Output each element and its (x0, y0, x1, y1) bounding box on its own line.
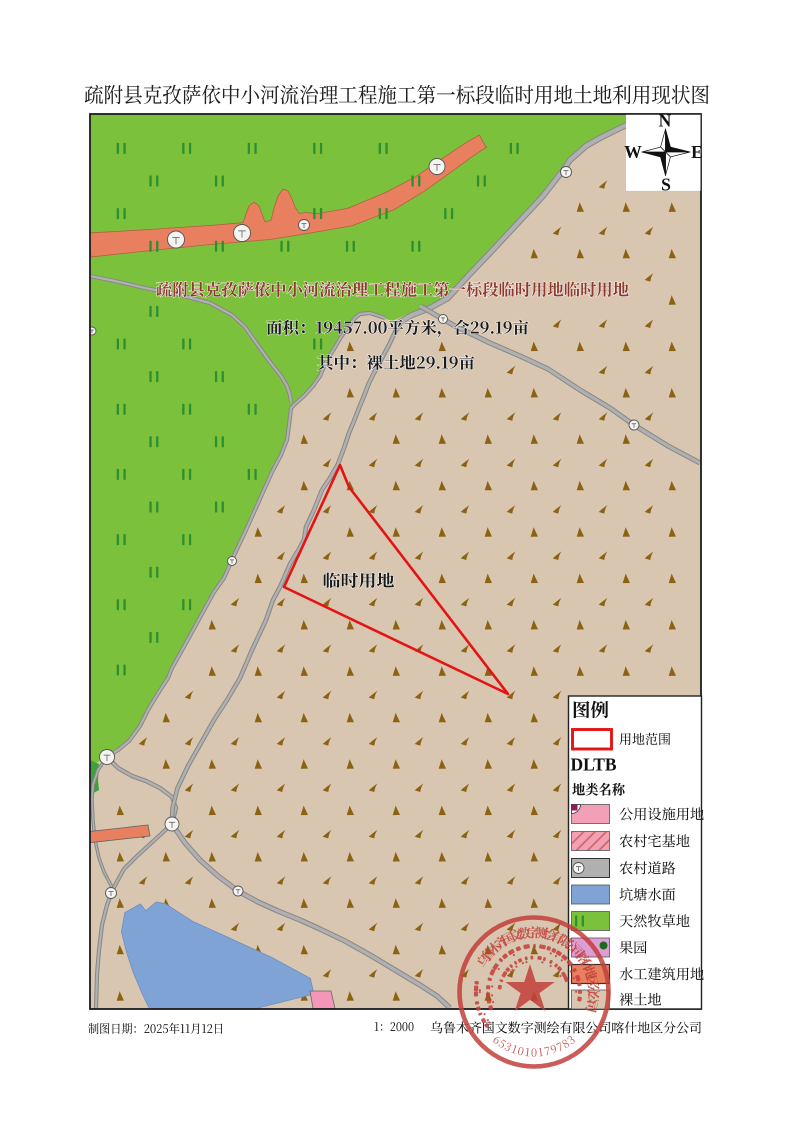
svg-text:W: W (624, 142, 642, 162)
svg-text:S: S (661, 175, 671, 195)
svg-text:E: E (691, 142, 703, 162)
svg-text:N: N (659, 111, 672, 131)
svg-text:DLTB: DLTB (571, 755, 617, 775)
